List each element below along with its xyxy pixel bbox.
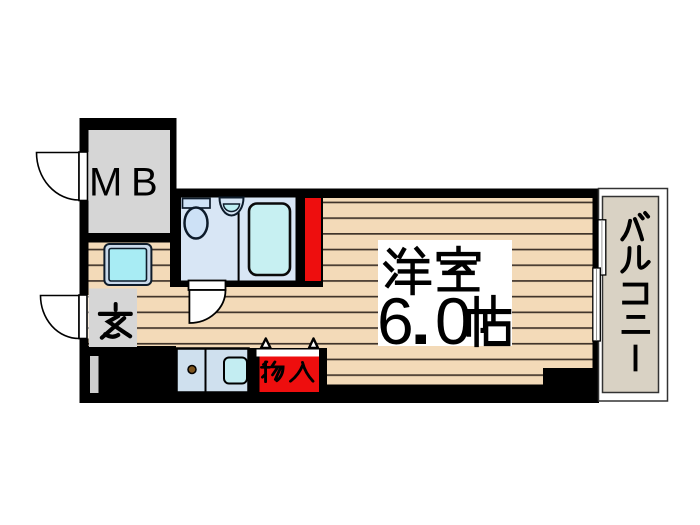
svg-text:0: 0	[435, 284, 472, 358]
svg-text:B: B	[131, 161, 158, 205]
svg-text:M: M	[89, 161, 122, 205]
svg-text:6: 6	[377, 284, 414, 358]
